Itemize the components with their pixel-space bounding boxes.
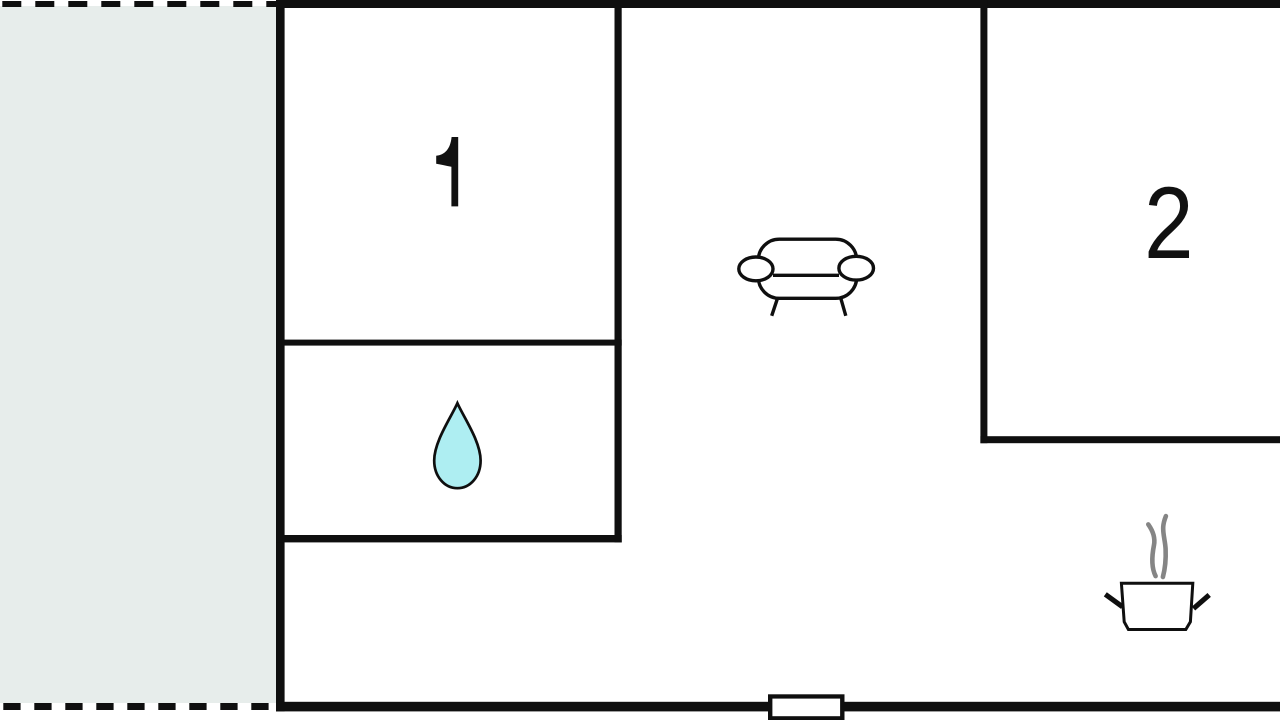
svg-text:2: 2 (1144, 166, 1193, 280)
